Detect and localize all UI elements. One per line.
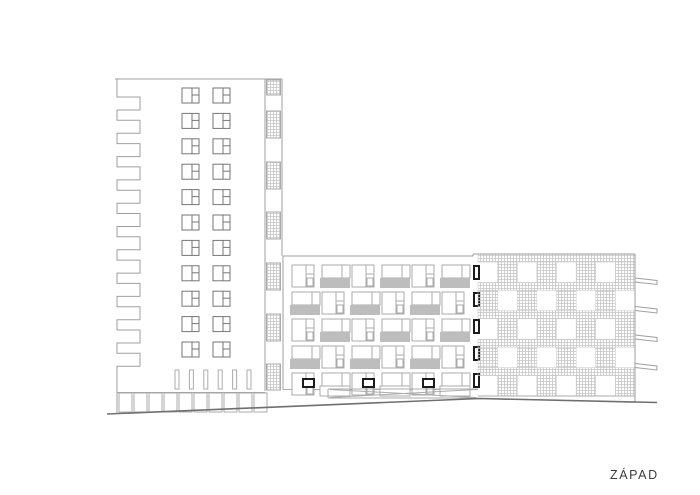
- middle-window-wide-with-balcony: [440, 319, 470, 342]
- floor-slab-band: [478, 339, 635, 347]
- facade-hatched-panel: [557, 347, 577, 367]
- balcony-slab-gray: [440, 332, 470, 342]
- tower-window: [182, 291, 199, 306]
- middle-window-tall: [442, 292, 464, 314]
- middle-window-tall: [292, 265, 314, 287]
- window-frame: [352, 265, 374, 287]
- tower-window: [182, 164, 199, 179]
- floor-slab-band: [478, 254, 635, 262]
- window-frame: [412, 265, 434, 287]
- facade-hatched-panel: [615, 376, 635, 396]
- facade-hatched-panel: [615, 262, 635, 282]
- middle-window-wide-with-balcony: [440, 373, 470, 396]
- balcony-slab-gray: [440, 278, 470, 288]
- middle-window-tall: [412, 265, 434, 287]
- window-frame: [442, 265, 470, 278]
- window-frame: [442, 346, 464, 368]
- slab-section-mark: [474, 320, 479, 333]
- tower: [115, 79, 282, 414]
- window-frame: [322, 373, 350, 386]
- facade-hatched-panel: [596, 347, 616, 367]
- floor-slab-band: [478, 311, 635, 319]
- elevation-title: ZÁPAD: [610, 468, 659, 482]
- window-frame: [442, 319, 470, 332]
- entrance-door-marker: [303, 379, 314, 387]
- tower-balcony-sawtooth-edge: [117, 79, 140, 414]
- ground-slat: [175, 370, 179, 389]
- window-frame: [412, 292, 440, 305]
- tower-window: [213, 88, 230, 103]
- balcony-slab-gray: [350, 305, 380, 315]
- middle-window-wide-with-balcony: [320, 319, 350, 342]
- facade-hatched-panel: [576, 262, 596, 282]
- strip-hatched-panel: [267, 162, 281, 189]
- floor-slab-band: [478, 282, 635, 290]
- slab-section-mark: [474, 266, 479, 279]
- tower-window: [182, 190, 199, 205]
- window-frame: [442, 373, 470, 386]
- tower-window: [213, 215, 230, 230]
- balcony-slab-gray: [410, 359, 440, 369]
- window-frame: [292, 346, 320, 359]
- middle-window-wide-with-balcony: [350, 346, 380, 369]
- window-frame: [292, 292, 320, 305]
- window-frame: [292, 265, 314, 287]
- entrance-door-marker: [423, 379, 434, 387]
- facade-hatched-panel: [537, 319, 557, 339]
- middle-window-wide-with-balcony: [380, 265, 410, 288]
- entrance-door-marker: [363, 379, 374, 387]
- middle-window-tall: [382, 292, 404, 314]
- tower-window: [182, 139, 199, 154]
- tower-window: [213, 190, 230, 205]
- window-frame: [322, 346, 344, 368]
- window-frame: [382, 373, 410, 386]
- middle-window-tall: [292, 319, 314, 341]
- facade-hatched-panel: [478, 290, 498, 310]
- middle-window-wide-with-balcony: [410, 292, 440, 315]
- tower-facade-strip: [265, 79, 281, 391]
- window-frame: [412, 346, 440, 359]
- window-frame: [292, 319, 314, 341]
- window-frame: [352, 292, 380, 305]
- elevation-svg: [0, 0, 700, 495]
- slab-section-mark: [474, 374, 479, 387]
- facade-hatched-panel: [478, 347, 498, 367]
- tower-window: [213, 139, 230, 154]
- window-frame: [442, 292, 464, 314]
- tower-base-panels: [119, 393, 267, 412]
- balcony-slab-gray: [290, 305, 320, 315]
- balcony-slab-gray: [350, 359, 380, 369]
- base-panel: [164, 393, 177, 412]
- facade-hatched-panel: [498, 319, 518, 339]
- tower-window: [182, 113, 199, 128]
- middle-window-tall: [322, 292, 344, 314]
- tower-window: [213, 164, 230, 179]
- window-frame: [382, 319, 410, 332]
- strip-hatched-panel: [267, 111, 281, 138]
- balcony-slab-gray: [380, 278, 410, 288]
- base-panel: [149, 393, 162, 412]
- side-balcony-slab: [635, 364, 657, 371]
- middle-window-tall: [352, 319, 374, 341]
- tower-window: [213, 342, 230, 357]
- middle-window-wide-with-balcony: [380, 319, 410, 342]
- balcony-slab-gray: [410, 305, 440, 315]
- tower-window: [213, 113, 230, 128]
- middle-window-tall: [352, 265, 374, 287]
- facade-hatched-panel: [537, 262, 557, 282]
- ground-slat: [218, 370, 222, 389]
- facade-hatched-panel: [498, 262, 518, 282]
- middle-window-tall: [292, 373, 314, 395]
- tower-window: [182, 266, 199, 281]
- elevation-drawing-area: [0, 0, 700, 495]
- ground-slat: [247, 370, 251, 389]
- middle-building: [283, 256, 479, 396]
- strip-hatched-panel: [267, 314, 281, 341]
- window-frame: [382, 265, 410, 278]
- middle-window-wide-with-balcony: [290, 292, 320, 315]
- strip-hatched-panel: [267, 263, 281, 290]
- base-panel: [134, 393, 147, 412]
- tower-window: [182, 215, 199, 230]
- facade-hatched-panel: [557, 290, 577, 310]
- facade-hatched-panel: [576, 319, 596, 339]
- middle-window-wide-with-balcony: [290, 346, 320, 369]
- base-panel: [179, 393, 192, 412]
- ground-slat: [233, 370, 237, 389]
- tower-windows: [182, 88, 230, 357]
- facade-hatched-panel: [537, 376, 557, 396]
- side-balcony-slab: [635, 278, 657, 285]
- facade-hatched-panel: [517, 347, 537, 367]
- window-frame: [382, 292, 404, 314]
- tower-window: [213, 317, 230, 332]
- window-frame: [322, 265, 350, 278]
- floor-slab-band: [478, 368, 635, 376]
- strip-hatched-panel: [267, 212, 281, 239]
- base-panel: [119, 393, 132, 412]
- elevation-sheet: ZÁPAD: [0, 0, 700, 495]
- ground-slat: [204, 370, 208, 389]
- tower-window: [213, 291, 230, 306]
- middle-window-tall: [442, 346, 464, 368]
- middle-window-tall: [382, 346, 404, 368]
- middle-window-wide-with-balcony: [320, 265, 350, 288]
- balcony-slab-gray: [380, 332, 410, 342]
- tower-window: [182, 240, 199, 255]
- window-frame: [322, 292, 344, 314]
- tower-window: [182, 88, 199, 103]
- strip-hatched-panel: [267, 80, 281, 95]
- window-frame: [322, 319, 350, 332]
- base-panel: [254, 393, 267, 412]
- side-balcony-slab: [635, 335, 657, 342]
- side-balcony-slab: [635, 307, 657, 314]
- middle-window-tall: [412, 319, 434, 341]
- facade-hatched-panel: [576, 376, 596, 396]
- balcony-slab-outline: [320, 386, 350, 396]
- ground-slat: [189, 370, 193, 389]
- middle-window-wide-with-balcony: [440, 265, 470, 288]
- middle-window-wide-with-balcony: [320, 373, 350, 396]
- middle-window-tall: [322, 346, 344, 368]
- tower-window: [213, 240, 230, 255]
- balcony-slab-gray: [320, 332, 350, 342]
- facade-hatched-panel: [498, 376, 518, 396]
- window-frame: [382, 346, 404, 368]
- middle-window-wide-with-balcony: [410, 346, 440, 369]
- window-frame: [412, 319, 434, 341]
- tower-window: [213, 266, 230, 281]
- facade-hatched-panel: [615, 319, 635, 339]
- tower-window: [182, 342, 199, 357]
- tower-window: [182, 317, 199, 332]
- facade-hatched-panel: [517, 290, 537, 310]
- window-frame: [352, 319, 374, 341]
- facade-hatched-panel: [596, 290, 616, 310]
- balcony-slab-gray: [320, 278, 350, 288]
- window-frame: [352, 346, 380, 359]
- right-building: [473, 254, 657, 403]
- strip-hatched-panel: [267, 364, 281, 390]
- tower-ground-slats: [175, 370, 251, 389]
- balcony-slab-gray: [290, 359, 320, 369]
- middle-window-wide-with-balcony: [350, 292, 380, 315]
